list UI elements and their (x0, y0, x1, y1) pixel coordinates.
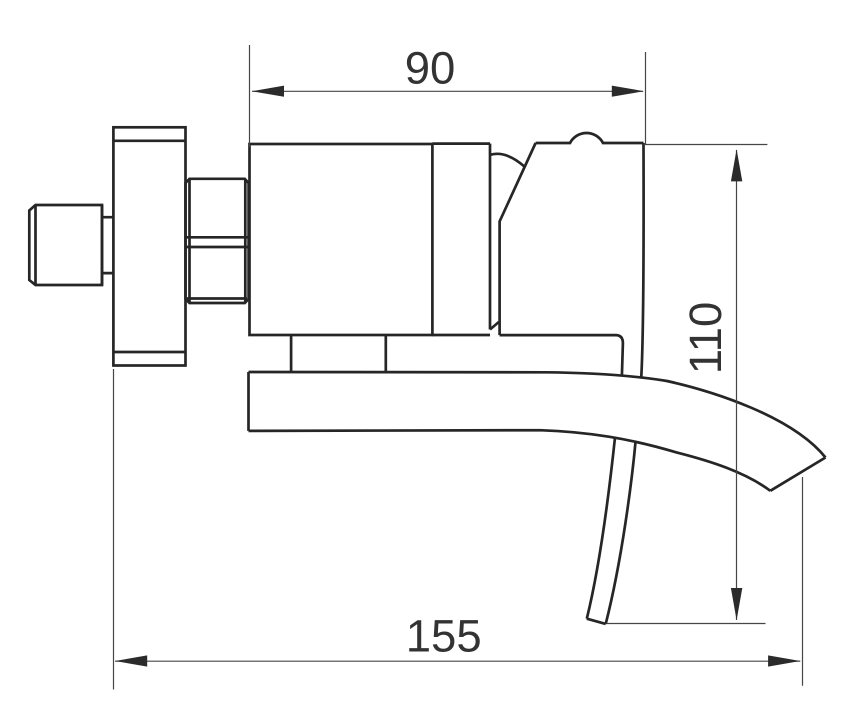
svg-text:155: 155 (406, 611, 482, 662)
svg-text:110: 110 (680, 302, 731, 375)
svg-text:90: 90 (405, 43, 456, 94)
